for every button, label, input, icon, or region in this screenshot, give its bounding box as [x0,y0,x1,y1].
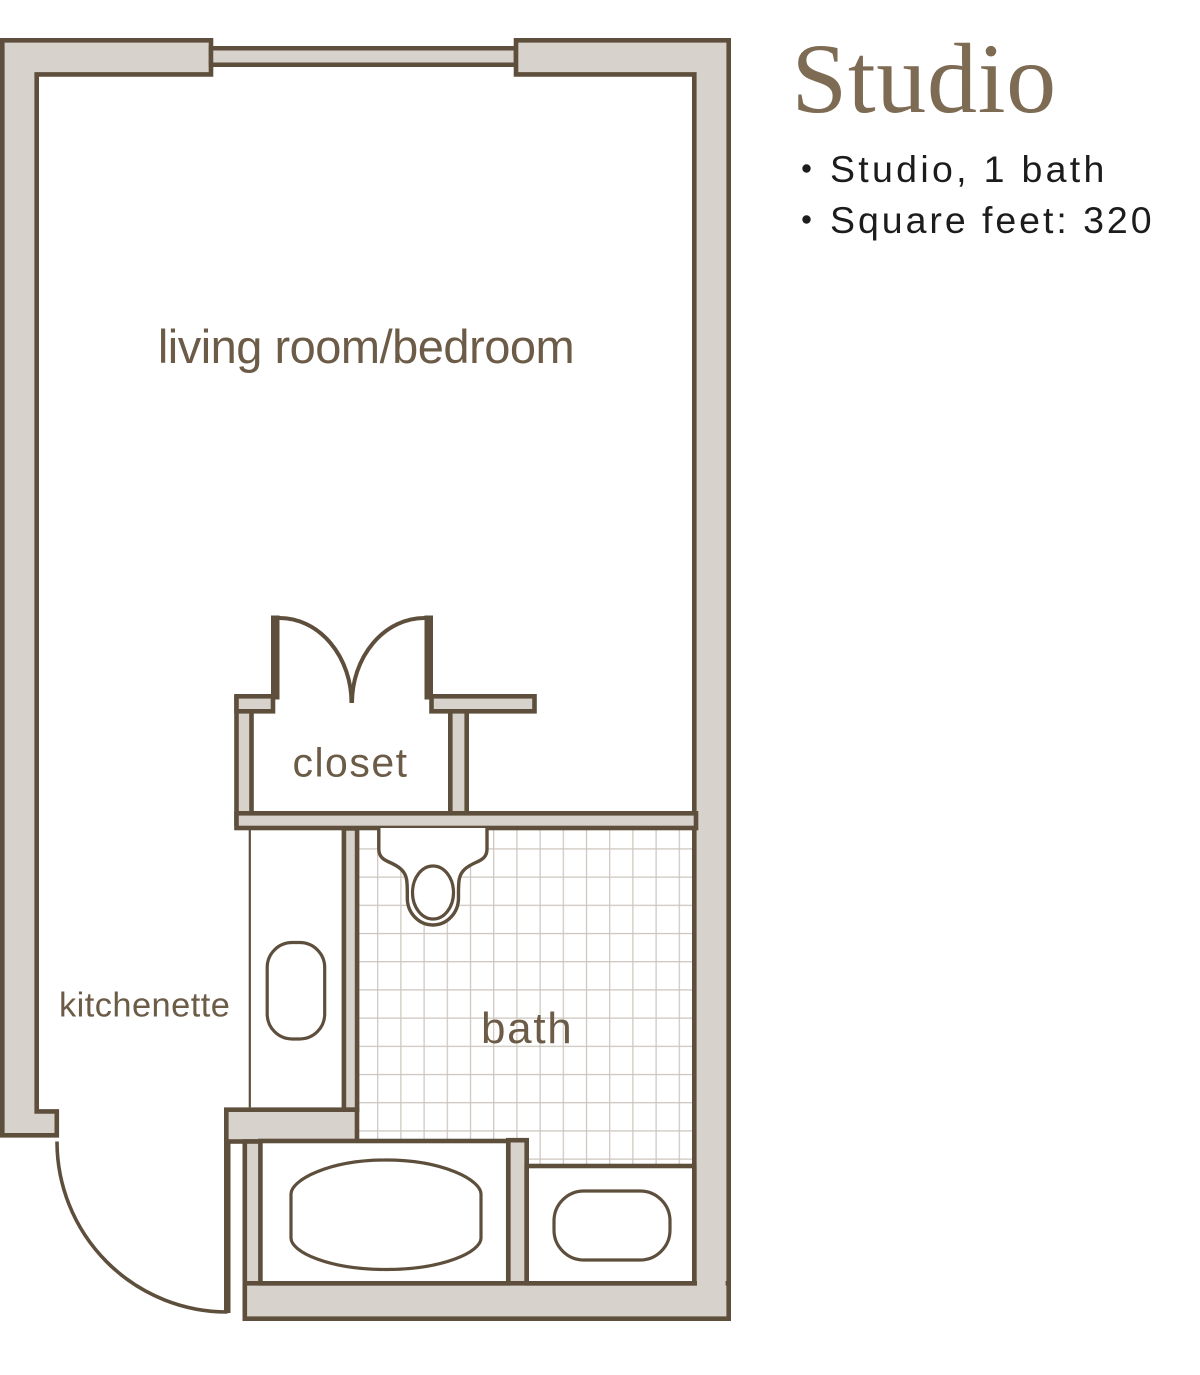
svg-text:kitchenette: kitchenette [59,987,230,1025]
svg-text:closet: closet [292,740,408,786]
svg-text:Square feet: 320: Square feet: 320 [830,199,1155,241]
svg-text:bath: bath [481,1004,573,1053]
svg-text:living room/bedroom: living room/bedroom [158,320,574,373]
svg-text:Studio, 1 bath: Studio, 1 bath [830,148,1108,190]
svg-text:Studio: Studio [792,23,1057,134]
